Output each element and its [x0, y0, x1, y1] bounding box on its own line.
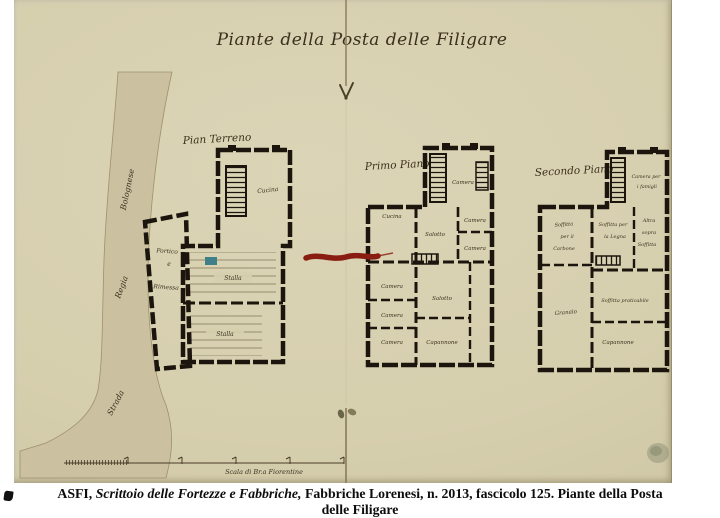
staircase [412, 254, 438, 264]
caption-line-1: ASFI, Scrittoio delle Fortezze e Fabbric… [0, 486, 720, 502]
room-label-soffitta-carbone-2: per il [560, 234, 574, 240]
room-label-salotto-1: Salotto [425, 232, 446, 238]
plan-label-pian-terreno: Pian Terreno [182, 131, 252, 147]
room-label-camera-l2: Camera [381, 313, 403, 319]
room-label-stalla-1: Stalla [224, 275, 242, 282]
staircase [596, 256, 620, 265]
red-annotation-mark [306, 253, 393, 258]
room-label-altra-soffitta-1: Altra [642, 218, 656, 224]
plan-label-primo-piano: Primo Piano [364, 158, 430, 173]
room-label-camera-famigli-1: Camera per [632, 174, 662, 180]
room-label-soffitta-legna-1: Soffitta per [599, 222, 628, 228]
caption-fondo-italic: Scrittoio delle Fortezze e Fabbriche, [96, 486, 302, 501]
room-label-portico: Portico [155, 247, 178, 256]
room-label-soffitta-carbone-3: Carbone [553, 246, 575, 252]
room-label-soffitta-legna-2: la Legna [604, 234, 626, 240]
caption-archive: ASFI, [57, 486, 95, 501]
room-label-camera-tower: Camera [452, 180, 474, 186]
room-label-soffitta-praticabile: Soffitta praticabile [601, 298, 649, 304]
scale-label: Scala di Br.a Fiorentine [225, 468, 303, 476]
figure-caption: ASFI, Scrittoio delle Fortezze e Fabbric… [0, 483, 720, 508]
caption-reference: Fabbriche Lorenesi, n. 2013, fascicolo 1… [302, 486, 663, 501]
room-label-cucina: Cucina [382, 214, 401, 220]
room-label-soffitta-carbone-1: Soffitta [554, 221, 573, 228]
floor-plan-pian-terreno: Pian Terreno Cucina Stalla Stalla Portic… [145, 131, 290, 369]
plan-drawing: Bolognese Regia Strada Piante della Post… [14, 0, 672, 483]
room-label-camera-r2: Camera [464, 246, 486, 252]
drawing-title: Piante della Posta delle Filigare [216, 30, 508, 50]
room-label-altra-soffitta-3: Soffitta [638, 242, 657, 248]
hatched-closet [476, 162, 488, 190]
room-label-rimessa: Rimessa [152, 283, 179, 292]
archive-stamp [647, 443, 669, 463]
room-label-camera-famigli-2: i famigli [637, 184, 657, 190]
staircase [430, 154, 446, 202]
scanned-plan-image: Bolognese Regia Strada Piante della Post… [14, 0, 672, 483]
caption-line-2-truncated: delle Filigare [0, 502, 720, 518]
staircase [611, 158, 625, 202]
room-label-camera-l3: Camera [381, 340, 403, 346]
room-label-stalla-2: Stalla [216, 331, 234, 338]
room-label-camera-l1: Camera [381, 284, 403, 290]
room-label-altra-soffitta-2: sopra [642, 230, 656, 236]
room-label-e: e [167, 261, 171, 268]
room-label-granaio: Granaio [555, 309, 578, 317]
room-label-camera-r1: Camera [464, 218, 486, 224]
floor-plan-primo-piano: Primo Piano Camera Cucina Salotto Camera… [364, 143, 492, 365]
blue-trough-mark [205, 257, 217, 265]
room-label-salotto-2: Salotto [432, 296, 453, 302]
staircase [226, 166, 246, 216]
room-label-cucina: Cucina [257, 186, 279, 195]
room-label-capannone-1: Capannone [426, 340, 458, 346]
floor-plan-secondo-piano: Secondo Piano Camera per i famigli Soffi… [535, 147, 667, 370]
plan-label-secondo-piano: Secondo Piano [535, 163, 614, 179]
room-label-capannone-2: Capannone [602, 340, 634, 346]
fold-crease-bottom [337, 407, 358, 483]
